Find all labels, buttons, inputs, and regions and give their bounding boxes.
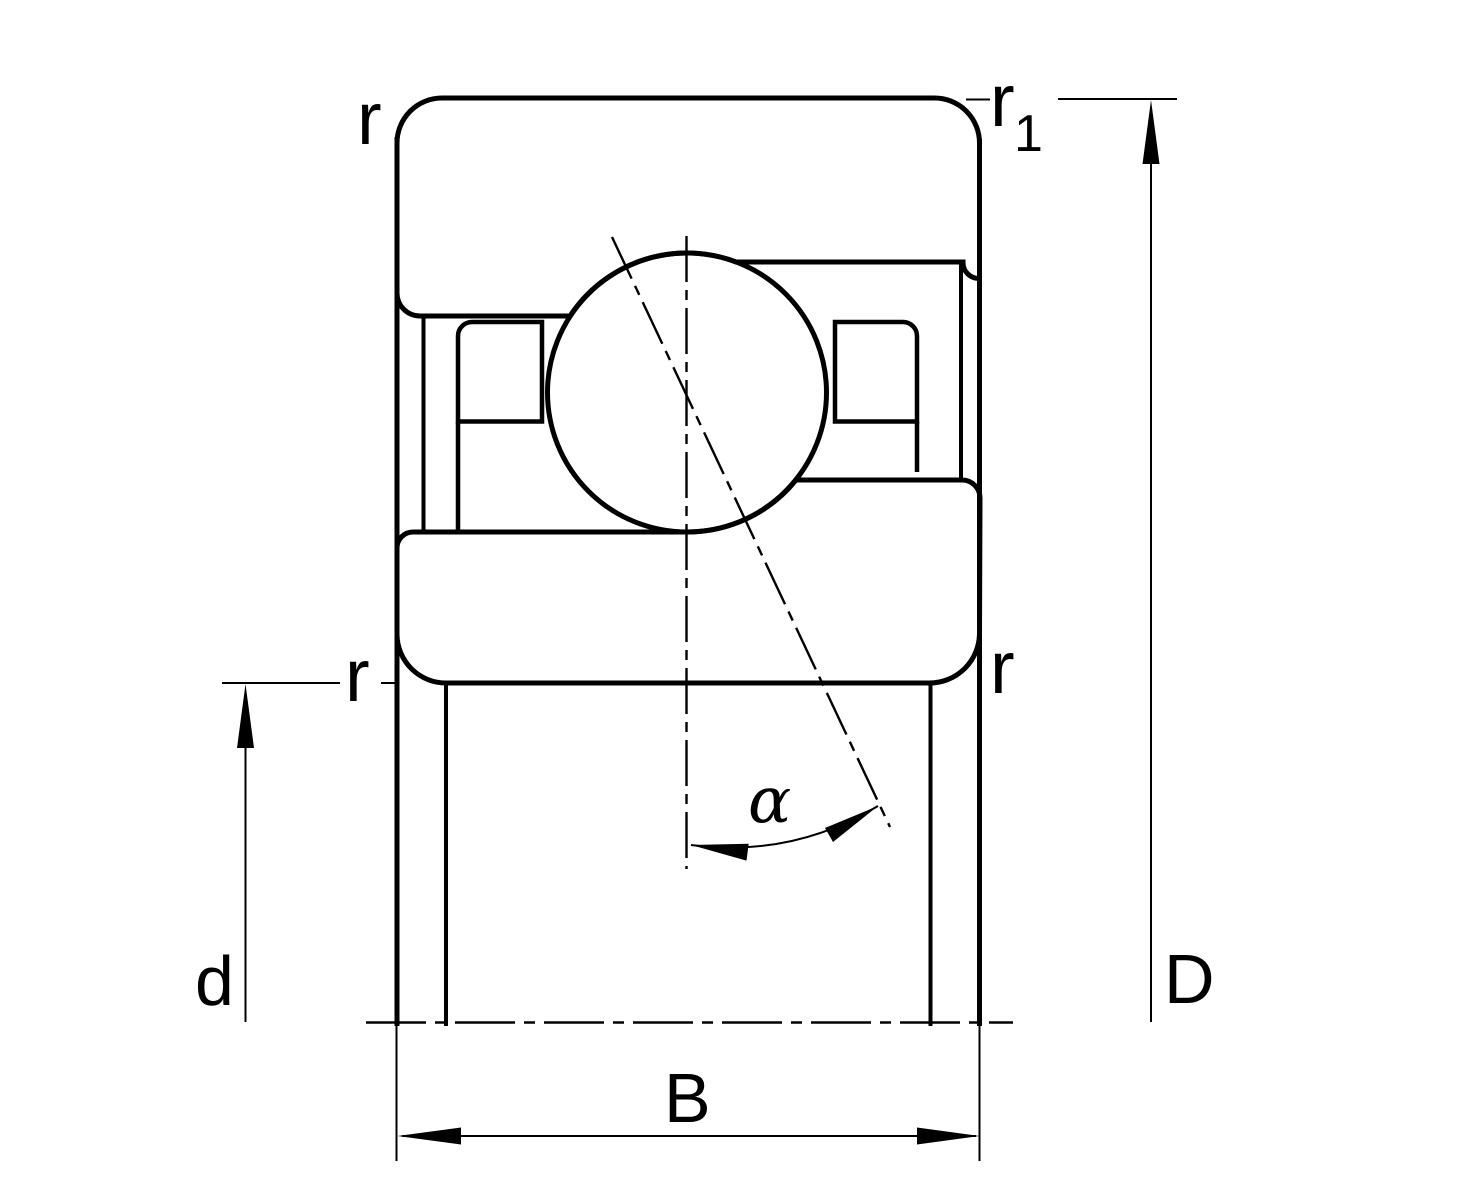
label-r-bottom-left: r	[345, 634, 370, 717]
cage-pocket-right	[835, 322, 917, 422]
contact-angle-arrowhead-right	[825, 806, 878, 842]
dim-D-arrowhead	[1143, 100, 1160, 164]
dim-d-arrowhead	[237, 684, 254, 748]
label-r-top-left: r	[357, 77, 382, 160]
label-d: d	[195, 942, 234, 1020]
dim-B-arrowhead-right	[917, 1128, 980, 1145]
bearing-cross-section-diagram: r r 1 r r d D B α	[0, 0, 1466, 1200]
label-r-bottom-right: r	[990, 626, 1015, 709]
bearing-cross-section-drawing: r r 1 r r d D B α	[0, 0, 1466, 1200]
label-B: B	[664, 1059, 711, 1137]
dim-B-arrowhead-left	[398, 1128, 462, 1145]
label-r1-main: r	[990, 59, 1015, 142]
label-D: D	[1164, 940, 1215, 1018]
cage-pocket-left	[458, 322, 542, 422]
label-r1-subscript: 1	[1014, 105, 1043, 163]
outer-ring-section	[397, 98, 980, 316]
label-alpha: α	[748, 764, 791, 838]
inner-ring-section	[397, 480, 980, 683]
contact-angle-arrowhead-left	[691, 844, 749, 861]
